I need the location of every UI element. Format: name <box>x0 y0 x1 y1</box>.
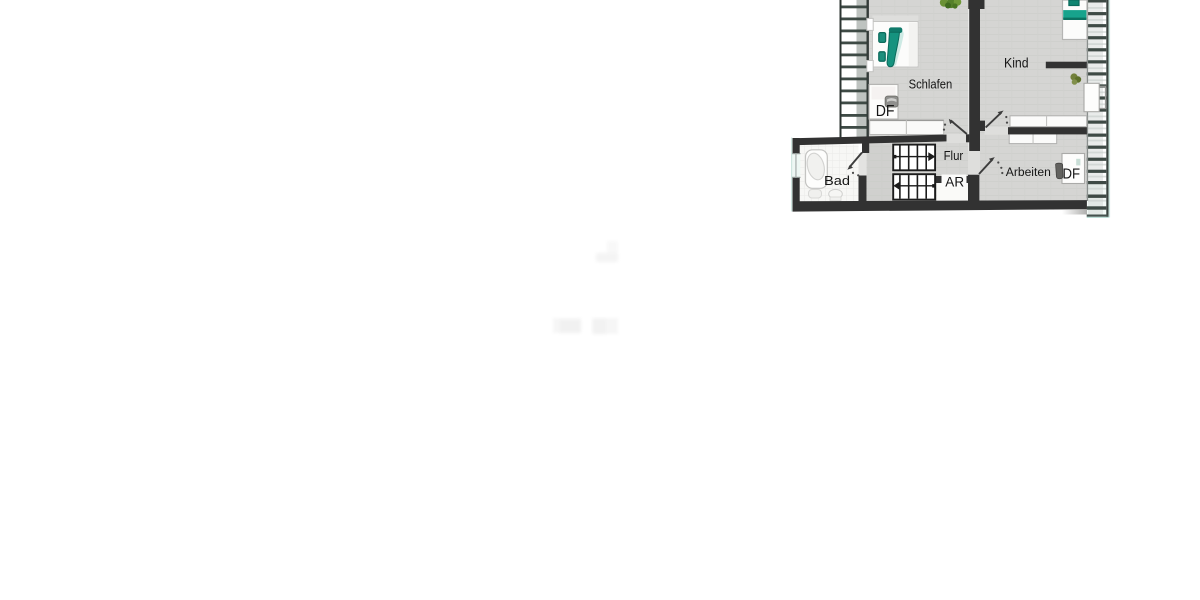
svg-text:DF: DF <box>1063 167 1081 183</box>
svg-text:Kind: Kind <box>1004 55 1029 70</box>
svg-text:Bad: Bad <box>824 173 850 188</box>
svg-text:Flur: Flur <box>944 148 964 163</box>
svg-text:Schlafen: Schlafen <box>909 77 953 92</box>
svg-text:AR: AR <box>945 175 964 190</box>
svg-text:Arbeiten: Arbeiten <box>1006 165 1051 179</box>
svg-text:DF: DF <box>876 103 895 120</box>
